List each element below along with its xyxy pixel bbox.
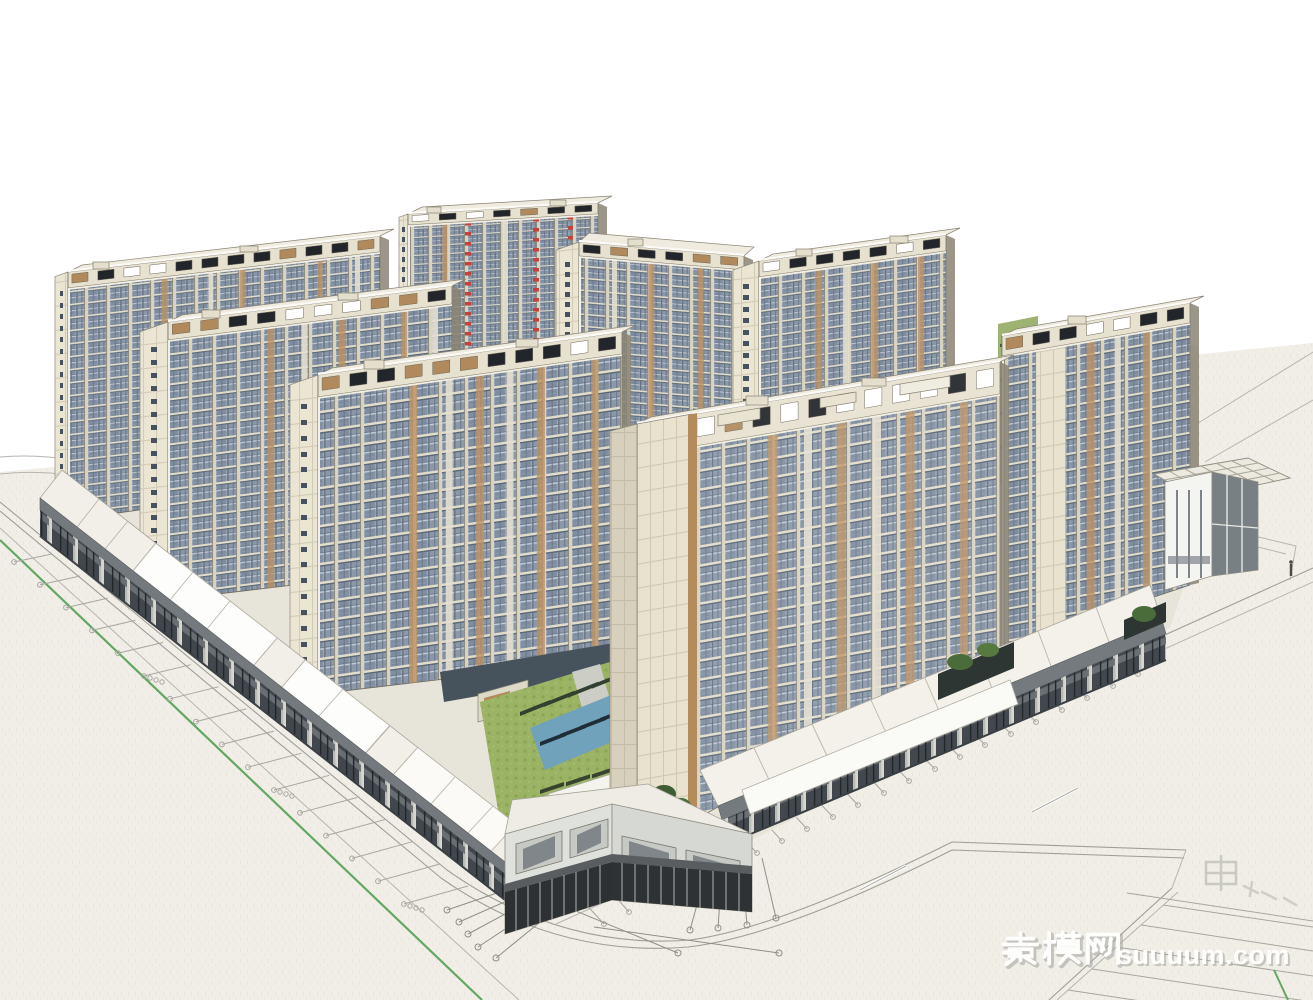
svg-text:suuuum.com: suuuum.com (1117, 940, 1290, 970)
